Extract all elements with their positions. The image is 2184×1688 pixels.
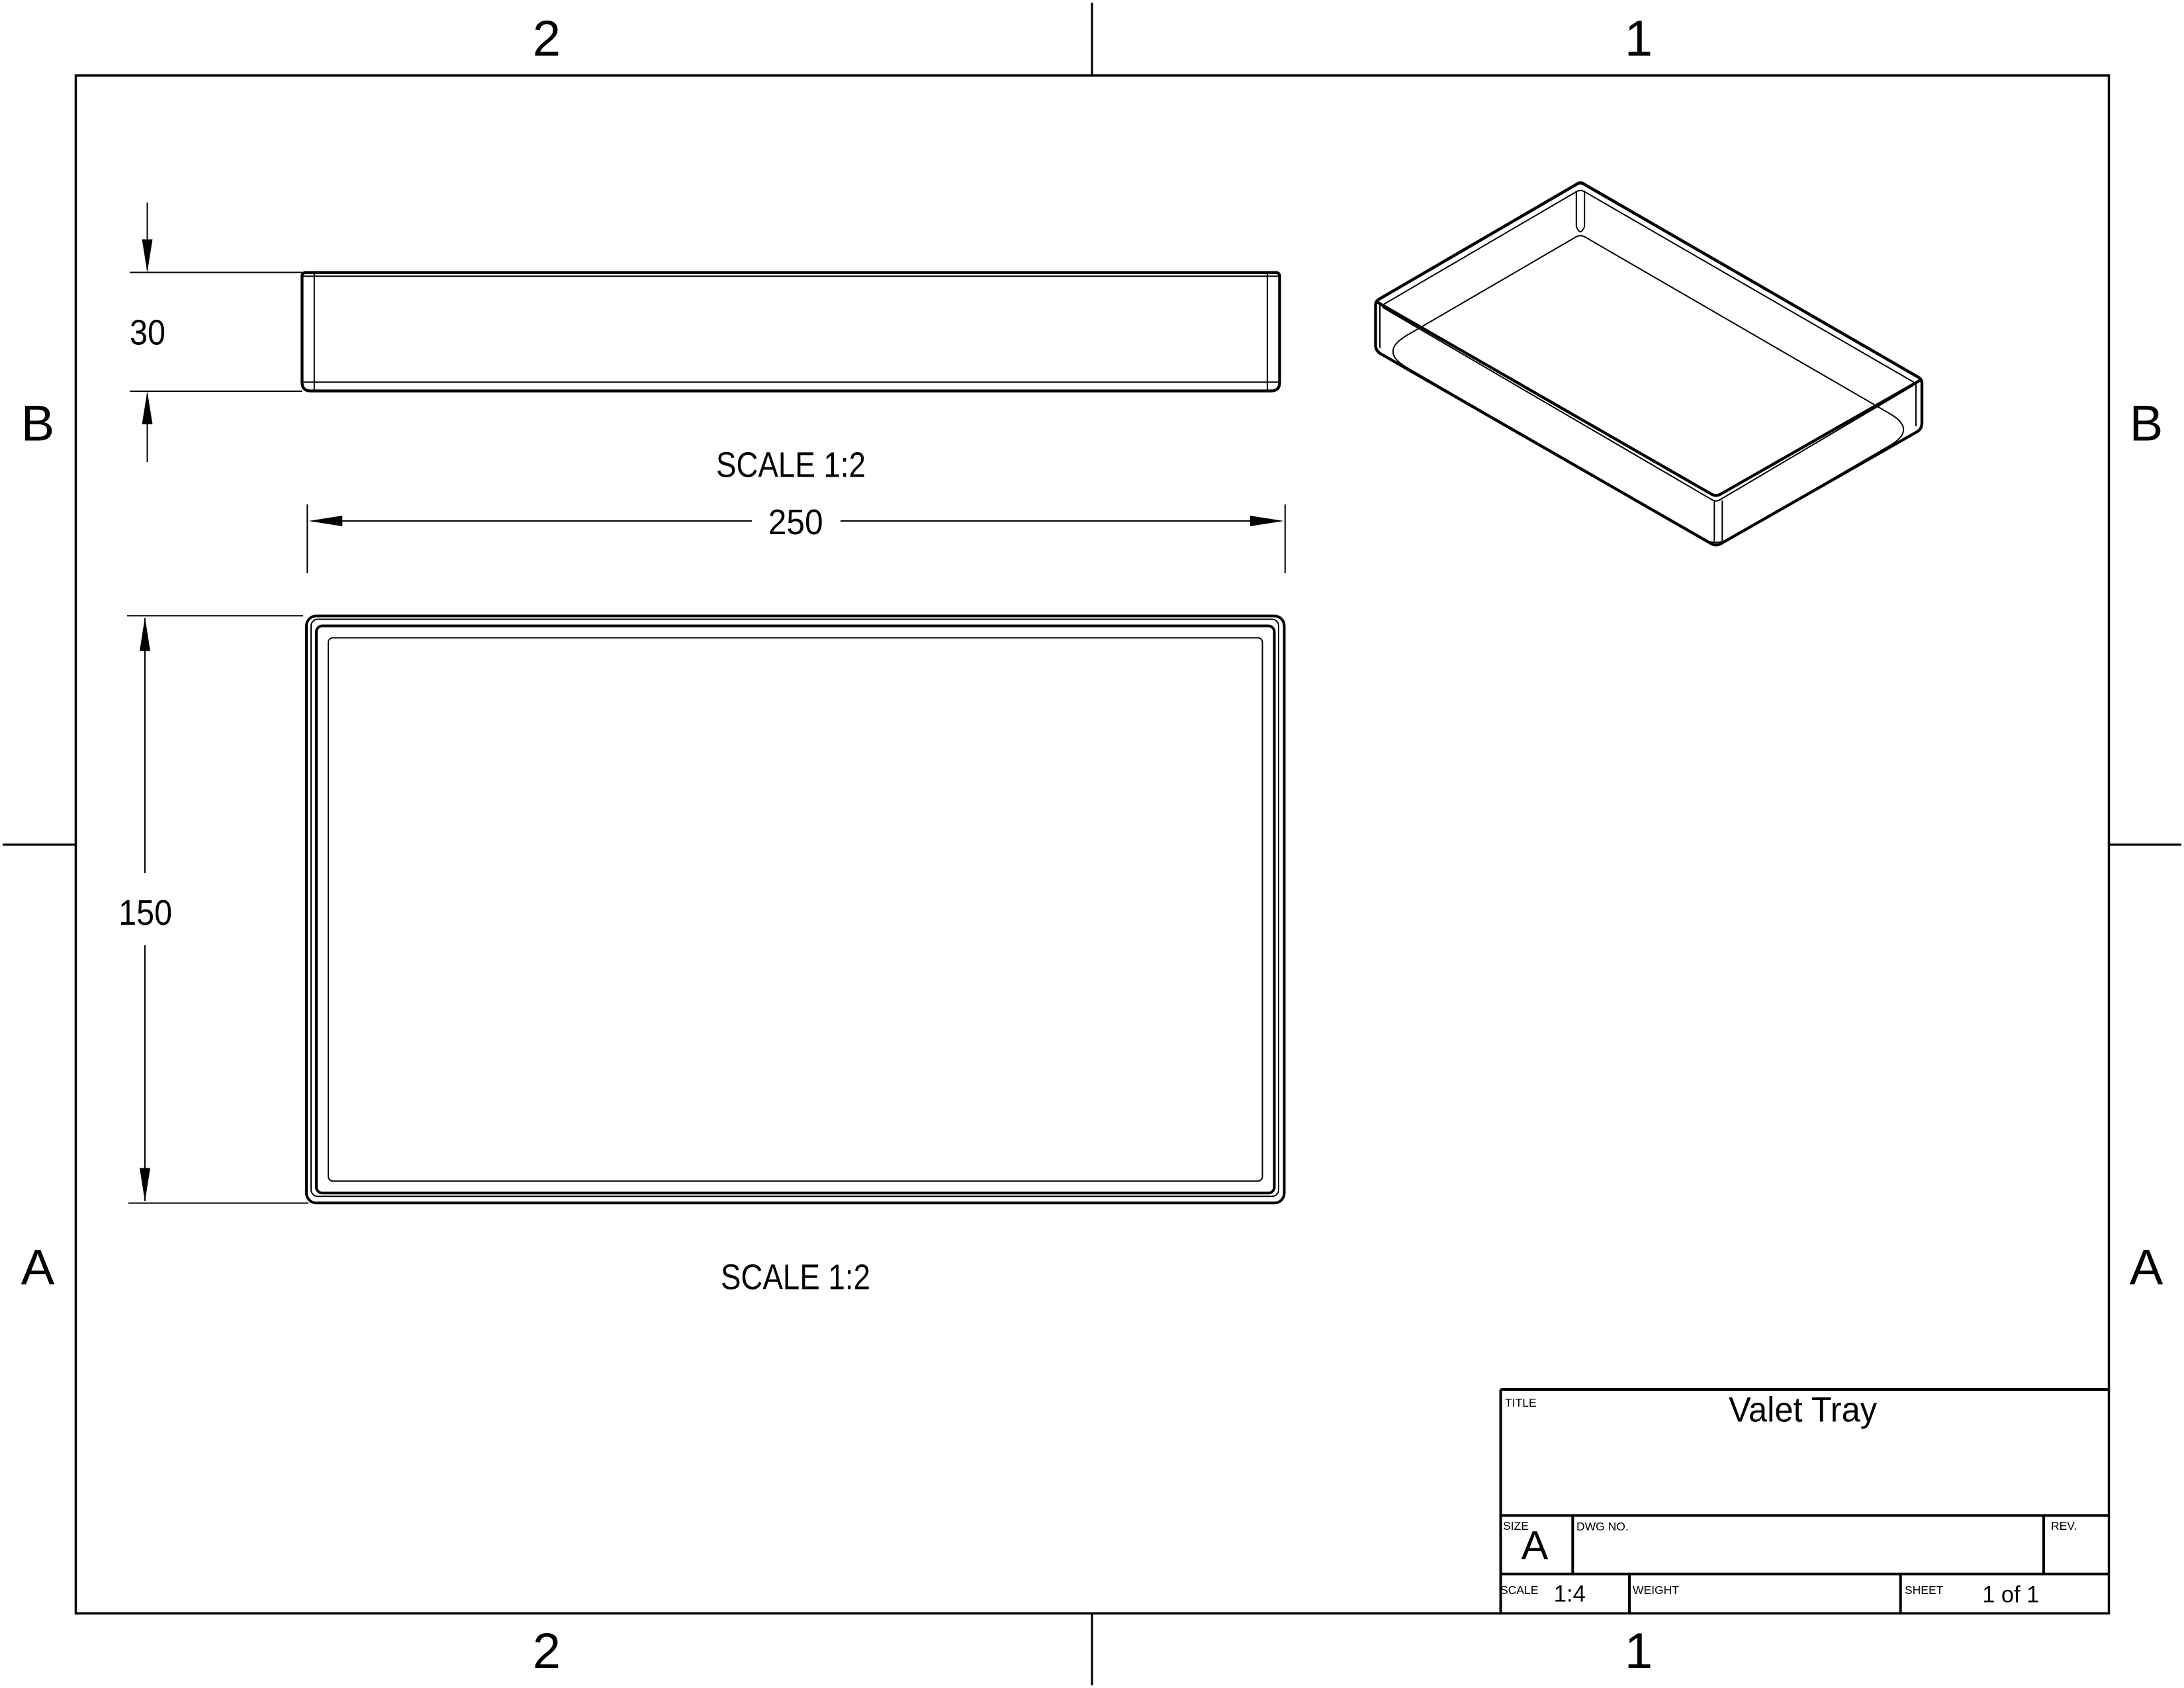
svg-text:250: 250 <box>768 502 823 542</box>
svg-text:SCALE 1:2: SCALE 1:2 <box>721 1257 870 1297</box>
svg-text:1 of 1: 1 of 1 <box>1982 1581 2039 1607</box>
svg-text:A: A <box>1522 1523 1549 1568</box>
svg-text:Valet Tray: Valet Tray <box>1729 1391 1877 1430</box>
svg-text:1:4: 1:4 <box>1554 1580 1586 1607</box>
svg-text:SCALE: SCALE <box>1500 1583 1538 1597</box>
svg-text:TITLE: TITLE <box>1505 1396 1537 1409</box>
svg-text:REV.: REV. <box>2051 1519 2077 1532</box>
svg-text:150: 150 <box>118 893 172 933</box>
svg-text:A: A <box>21 1240 55 1296</box>
svg-text:WEIGHT: WEIGHT <box>1633 1583 1679 1597</box>
svg-text:SCALE 1:2: SCALE 1:2 <box>716 445 866 485</box>
svg-text:B: B <box>2130 396 2163 452</box>
svg-text:DWG NO.: DWG NO. <box>1576 1520 1629 1533</box>
svg-text:A: A <box>2130 1240 2163 1296</box>
svg-text:2: 2 <box>533 1623 561 1679</box>
svg-text:30: 30 <box>130 312 165 352</box>
svg-text:1: 1 <box>1625 1623 1653 1679</box>
svg-text:SHEET: SHEET <box>1905 1583 1944 1597</box>
svg-text:B: B <box>21 396 55 452</box>
svg-text:1: 1 <box>1625 11 1653 67</box>
svg-text:2: 2 <box>533 11 561 67</box>
